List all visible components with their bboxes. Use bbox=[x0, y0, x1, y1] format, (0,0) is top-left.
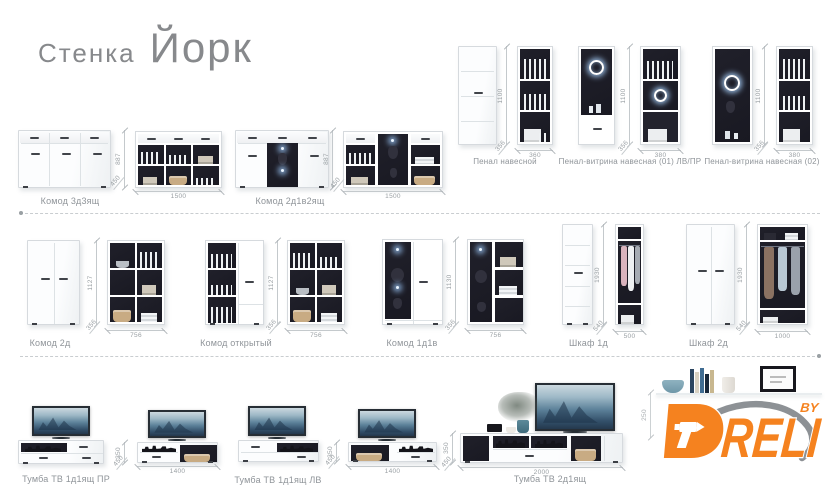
panel-seam bbox=[493, 449, 567, 450]
product-label: Шкаф 2д bbox=[661, 338, 756, 348]
title-series-name: Йорк bbox=[150, 24, 253, 72]
top-shelf bbox=[760, 227, 805, 240]
shelf-compartment bbox=[138, 166, 164, 185]
penal-vitrina-02-closed bbox=[712, 46, 753, 145]
decor-clothes bbox=[635, 246, 640, 284]
led-ring bbox=[589, 60, 604, 75]
decor-towels bbox=[321, 313, 337, 322]
dim-height-value: 1930 bbox=[736, 255, 746, 295]
drawer-strip bbox=[237, 132, 327, 143]
dim-height: 1130 bbox=[455, 239, 456, 325]
page-title: Стенка Йорк bbox=[38, 24, 253, 72]
row-divider bbox=[20, 213, 820, 214]
tv-stand-base bbox=[168, 439, 186, 441]
product-label: Шкаф 1д bbox=[541, 338, 636, 348]
handle bbox=[308, 137, 317, 139]
shkaf-2d-closed bbox=[686, 224, 735, 325]
handle bbox=[251, 446, 260, 448]
dim-height-value: 1127 bbox=[267, 263, 277, 303]
panel-seam bbox=[140, 452, 178, 453]
shelf-compartment bbox=[208, 270, 236, 295]
tv-screen bbox=[250, 408, 304, 434]
handle bbox=[474, 92, 483, 94]
komod-3d3-open bbox=[135, 131, 222, 188]
tv-stand-base bbox=[52, 437, 70, 439]
decor-silhouette bbox=[496, 438, 526, 448]
handle bbox=[79, 446, 88, 448]
tv-stand-base bbox=[378, 439, 396, 441]
handle bbox=[278, 137, 287, 139]
dim-width-value: 756 bbox=[287, 332, 345, 339]
panel-seam bbox=[239, 304, 263, 305]
vitrine-glass-door bbox=[715, 49, 750, 142]
shelf-compartment bbox=[317, 243, 342, 268]
handle bbox=[30, 137, 39, 139]
decor-basket bbox=[356, 453, 383, 461]
dim-width-value: 1400 bbox=[348, 468, 437, 475]
led-glow bbox=[391, 139, 394, 142]
penal-vitrina-01-open bbox=[640, 46, 681, 145]
product-label: Комод 1д1в bbox=[358, 338, 466, 348]
panel-seam bbox=[461, 71, 494, 72]
shkaf-2d-open bbox=[757, 224, 808, 325]
decor-books bbox=[524, 59, 546, 79]
dim-height: 1100 bbox=[629, 46, 630, 145]
dim-depth: 356 bbox=[84, 317, 100, 334]
komod-1d1v-open bbox=[467, 239, 524, 325]
decor-clothes bbox=[791, 247, 800, 295]
dim-width: 380 bbox=[640, 150, 681, 151]
shelf-compartment bbox=[779, 49, 810, 79]
tv bbox=[535, 383, 615, 431]
product-label: Тумба ТВ 1д1ящ ЛВ bbox=[217, 475, 339, 485]
row-divider bbox=[20, 356, 820, 357]
handle bbox=[201, 138, 210, 140]
komod-2d-closed bbox=[27, 240, 80, 325]
komod-1d1v-closed bbox=[382, 239, 443, 325]
led-ring bbox=[654, 89, 667, 102]
dim-width: 1500 bbox=[343, 191, 443, 192]
dim-height: 1100 bbox=[506, 46, 507, 145]
decor-bottle bbox=[596, 104, 601, 113]
decor-towels bbox=[141, 313, 157, 322]
decor-books bbox=[211, 254, 232, 268]
handle bbox=[31, 153, 40, 155]
shelf-compartment bbox=[138, 145, 164, 164]
dim-height: 887 bbox=[124, 130, 125, 188]
komod-otkrytyi-open bbox=[287, 240, 345, 325]
handle bbox=[715, 270, 724, 272]
decor-bowl bbox=[116, 261, 130, 268]
decor-vase bbox=[388, 146, 398, 159]
tv-screen-landscape bbox=[38, 415, 77, 430]
shelf-compartment bbox=[193, 166, 219, 185]
shelf-compartment bbox=[137, 297, 162, 322]
top-shelf bbox=[618, 227, 641, 239]
vitrine-glass-door bbox=[267, 143, 298, 187]
product-label: Пенал навесной bbox=[446, 157, 564, 166]
decor-bottle bbox=[734, 133, 738, 139]
decor-box bbox=[198, 156, 213, 164]
dim-height-value: 1130 bbox=[445, 262, 455, 302]
dim-width: 500 bbox=[615, 331, 644, 332]
decor-books bbox=[211, 285, 232, 295]
shelf-compartment bbox=[520, 81, 550, 111]
handle bbox=[248, 155, 257, 157]
brand-letters: RELI bbox=[719, 406, 824, 469]
dim-height: 1100 bbox=[764, 46, 765, 145]
dim-height-value: 1100 bbox=[496, 76, 506, 116]
shelf-compartment bbox=[290, 270, 315, 295]
catalog-page: Стенка Йорк 887 450 1500 Комод 3д3ящ bbox=[0, 0, 840, 504]
drawer-strip bbox=[138, 134, 219, 143]
panel-seam bbox=[565, 245, 590, 246]
decor-books bbox=[647, 61, 673, 79]
panel-seam bbox=[413, 242, 414, 324]
decor-box bbox=[143, 177, 158, 185]
panel-seam bbox=[54, 243, 55, 324]
dim-width: 1000 bbox=[757, 331, 808, 332]
dim-height: 1127 bbox=[277, 240, 278, 325]
decor-basket bbox=[169, 176, 187, 185]
penal-closed bbox=[458, 46, 497, 145]
shelf-compartment bbox=[643, 49, 678, 79]
tumba-pr-open bbox=[137, 442, 218, 463]
decor-basket bbox=[113, 310, 131, 322]
tv-screen-landscape bbox=[543, 397, 598, 423]
panel-seam bbox=[385, 320, 442, 321]
shelf-compartment bbox=[137, 270, 162, 295]
dim-width: 756 bbox=[467, 330, 524, 331]
decor-plant-foliage bbox=[498, 392, 540, 422]
panel-seam bbox=[604, 436, 605, 461]
dim-width: 1400 bbox=[137, 466, 218, 467]
decor-vase bbox=[390, 168, 397, 178]
panel-seam bbox=[49, 133, 50, 186]
shelf-compartment bbox=[166, 166, 192, 185]
tv bbox=[148, 410, 206, 438]
vitrine-compartment bbox=[470, 242, 492, 322]
komod-otkrytyi-closed bbox=[205, 240, 264, 325]
vitrine-glass-door bbox=[581, 49, 612, 115]
panel-seam bbox=[461, 121, 494, 122]
handle bbox=[593, 128, 602, 130]
product-label: Тумба ТВ 1д1ящ ПР bbox=[6, 474, 126, 484]
shelf-compartment bbox=[495, 270, 523, 295]
handle bbox=[248, 137, 257, 139]
dim-width-value: 756 bbox=[107, 332, 165, 339]
tv-screen bbox=[34, 408, 88, 434]
decor-black-box bbox=[487, 424, 502, 432]
decor-basket bbox=[414, 176, 434, 185]
tv bbox=[248, 406, 306, 436]
decor-bowl bbox=[296, 288, 310, 295]
decor-books bbox=[783, 96, 806, 111]
open-niche bbox=[21, 443, 67, 452]
product-label: Пенал-витрина навесная (02) bbox=[686, 157, 838, 166]
decor-silhouette bbox=[142, 445, 176, 452]
dim-height-value: 1127 bbox=[86, 263, 96, 303]
bottom-shelf bbox=[618, 305, 641, 324]
shelf-compartment bbox=[643, 112, 678, 142]
led-glow bbox=[281, 169, 284, 172]
vitrine-glass-door bbox=[385, 242, 411, 319]
decor-bottle bbox=[589, 106, 593, 113]
handle bbox=[152, 456, 161, 458]
handle bbox=[574, 272, 583, 274]
handle bbox=[174, 138, 183, 140]
decor-silhouette bbox=[399, 445, 433, 452]
handle bbox=[356, 138, 365, 140]
hanging-section bbox=[760, 242, 805, 308]
product-label: Тумба ТВ 2д1ящ bbox=[487, 474, 613, 484]
shelf-compartment bbox=[346, 166, 375, 185]
drawer-strip bbox=[411, 134, 440, 143]
shelf-compartment bbox=[208, 243, 236, 268]
decor-towels bbox=[499, 286, 517, 295]
tumba-lv-open bbox=[348, 442, 437, 462]
handle bbox=[411, 456, 420, 458]
decor-box bbox=[621, 315, 634, 324]
tv-stand-base bbox=[268, 437, 286, 439]
tv-screen-landscape bbox=[254, 415, 293, 430]
panel-seam bbox=[238, 243, 239, 324]
decor-box bbox=[783, 129, 800, 142]
hanging-section bbox=[618, 241, 641, 303]
decor-clothes bbox=[778, 247, 787, 291]
bottom-shelf bbox=[760, 310, 805, 323]
handle bbox=[245, 281, 254, 283]
dim-width: 1400 bbox=[348, 466, 437, 467]
product-label: Комод 2д bbox=[0, 338, 100, 348]
open-niche bbox=[463, 436, 489, 461]
panel-seam bbox=[21, 143, 108, 144]
open-niche bbox=[571, 436, 601, 461]
dim-height: 1127 bbox=[96, 240, 97, 325]
dim-height-value: 250 bbox=[640, 395, 650, 435]
penal-vitrina-01-closed bbox=[578, 46, 615, 145]
handle bbox=[41, 278, 50, 280]
dim-width-value: 1400 bbox=[137, 468, 218, 475]
handle bbox=[39, 457, 48, 459]
product-label: Комод 3д3ящ bbox=[12, 196, 128, 206]
komod-2d-open bbox=[107, 240, 165, 325]
vitrine-compartment bbox=[378, 134, 408, 185]
shelf-compartment bbox=[166, 145, 192, 164]
dim-depth: 356 bbox=[443, 317, 459, 334]
dim-width: 2000 bbox=[460, 467, 623, 468]
decor-books bbox=[539, 133, 547, 142]
decor-books bbox=[293, 253, 312, 268]
tv-screen-landscape bbox=[154, 419, 193, 433]
decor-clothes bbox=[628, 246, 634, 291]
product-label: Комод 2д1в2ящ bbox=[230, 196, 350, 206]
shelf-compartment bbox=[110, 297, 135, 322]
handle bbox=[82, 457, 91, 459]
decor-vase bbox=[393, 298, 402, 309]
decor-books bbox=[783, 59, 806, 78]
brand-by: BY bbox=[800, 400, 821, 415]
handle bbox=[59, 278, 68, 280]
shelf-compartment bbox=[346, 145, 375, 164]
decor-vase bbox=[475, 270, 487, 283]
dim-height: 1930 bbox=[603, 224, 604, 325]
shelf-compartment bbox=[520, 49, 550, 79]
shelf-compartment bbox=[208, 297, 236, 323]
dim-height-value: 887 bbox=[322, 139, 332, 179]
dim-depth: 540 bbox=[734, 318, 750, 335]
led-glow bbox=[479, 248, 482, 251]
shelf-compartment bbox=[110, 270, 135, 295]
komod-2d1v2-open bbox=[343, 131, 443, 188]
decor-basket bbox=[293, 310, 311, 322]
dim-height: 250 bbox=[650, 392, 651, 438]
tv-screen bbox=[537, 385, 613, 429]
decor-books bbox=[169, 155, 188, 164]
decor-silhouette bbox=[280, 445, 313, 452]
tv-screen bbox=[360, 411, 414, 436]
decor-box bbox=[763, 317, 779, 323]
shelf-compartment bbox=[317, 270, 342, 295]
handle bbox=[62, 153, 71, 155]
shelf-compartment bbox=[290, 243, 315, 268]
panel-seam bbox=[21, 453, 103, 454]
decor-books bbox=[320, 257, 339, 268]
vitrine-compartment bbox=[643, 81, 678, 111]
tv-screen-landscape bbox=[364, 418, 403, 433]
decor-vase bbox=[278, 153, 287, 165]
dim-depth: 356 bbox=[616, 138, 632, 155]
tv bbox=[358, 409, 416, 438]
dim-height: 1930 bbox=[746, 224, 747, 325]
shelf-compartment bbox=[110, 243, 135, 268]
handle bbox=[525, 455, 534, 457]
led-glow bbox=[281, 147, 284, 150]
poster-text-line bbox=[770, 376, 786, 378]
decor-books bbox=[349, 153, 370, 164]
decor-books bbox=[196, 178, 215, 185]
decor-vase bbox=[477, 302, 486, 312]
decor-vase bbox=[726, 101, 735, 113]
dim-width: 756 bbox=[107, 330, 165, 331]
drawer-strip bbox=[20, 132, 109, 143]
decor-towels bbox=[785, 233, 799, 240]
shkaf-1d-closed bbox=[562, 224, 593, 325]
open-niche bbox=[277, 443, 318, 452]
panel-seam bbox=[565, 306, 590, 307]
tv bbox=[32, 406, 90, 436]
dim-width-value: 1000 bbox=[757, 333, 808, 340]
panel-seam bbox=[565, 286, 590, 287]
panel-seam bbox=[241, 452, 318, 453]
decor-clothes bbox=[621, 246, 627, 286]
shelf-compartment bbox=[495, 242, 523, 267]
open-niche bbox=[493, 436, 529, 448]
dim-width: 756 bbox=[287, 330, 345, 331]
shelf-compartment bbox=[411, 145, 440, 164]
dim-height-value: 1100 bbox=[619, 76, 629, 116]
panel-seam bbox=[711, 227, 712, 324]
decor-towels bbox=[415, 157, 434, 164]
komod-3d3-closed bbox=[18, 130, 111, 188]
decor-clothes bbox=[764, 247, 774, 299]
handle bbox=[147, 138, 156, 140]
dim-height-value: 1100 bbox=[754, 76, 764, 116]
shelf-compartment bbox=[520, 112, 550, 142]
decor-basket bbox=[184, 454, 210, 462]
tumba-lv-closed bbox=[238, 440, 319, 462]
handle bbox=[297, 456, 306, 458]
drawer-strip bbox=[346, 134, 375, 143]
panel-seam bbox=[397, 452, 435, 453]
led-glow bbox=[396, 286, 399, 289]
led-glow bbox=[396, 248, 399, 251]
komod-2d1v2-closed bbox=[235, 130, 329, 188]
shelf-compartment bbox=[290, 297, 315, 322]
open-niche bbox=[180, 445, 217, 462]
dreli-logo: RELI BY bbox=[656, 388, 832, 472]
handle bbox=[698, 270, 707, 272]
decor-basket bbox=[575, 449, 596, 461]
open-niche bbox=[351, 445, 389, 461]
decor-silhouette bbox=[25, 445, 62, 452]
decor-books bbox=[524, 94, 546, 110]
dim-height-value: 1930 bbox=[593, 255, 603, 295]
dim-width: 1500 bbox=[135, 191, 222, 192]
panel-seam bbox=[80, 133, 81, 186]
shelf-compartment bbox=[495, 298, 523, 322]
product-label: Комод открытый bbox=[180, 338, 292, 348]
panel-seam bbox=[565, 265, 590, 266]
dim-width-value: 756 bbox=[467, 332, 524, 339]
tumba-pr-closed bbox=[18, 440, 104, 464]
decor-box bbox=[351, 177, 368, 185]
shelf-compartment bbox=[779, 112, 810, 142]
tumba-2d-open bbox=[460, 433, 623, 463]
handle bbox=[419, 281, 428, 283]
panel-seam bbox=[461, 96, 494, 97]
handle bbox=[421, 138, 430, 140]
dim-width: 360 bbox=[517, 150, 553, 151]
decor-silhouette bbox=[535, 439, 564, 448]
led-ring bbox=[724, 75, 740, 91]
dim-width-value: 1500 bbox=[135, 193, 222, 200]
title-prefix: Стенка bbox=[38, 38, 136, 69]
shelf-compartment bbox=[193, 145, 219, 164]
shelf-compartment bbox=[317, 297, 342, 322]
penal-vitrina-02-open bbox=[776, 46, 813, 145]
handle bbox=[90, 137, 99, 139]
open-niche bbox=[531, 436, 567, 448]
decor-box bbox=[142, 285, 157, 296]
decor-box bbox=[764, 233, 776, 240]
decor-bottle bbox=[725, 131, 730, 139]
shelf-compartment bbox=[779, 81, 810, 111]
shkaf-1d-open bbox=[615, 224, 644, 325]
decor-books bbox=[140, 252, 159, 268]
decor-books bbox=[211, 307, 232, 323]
shelf-compartment bbox=[137, 243, 162, 268]
decor-vase bbox=[391, 268, 404, 282]
penal-open bbox=[517, 46, 553, 145]
dim-depth: 540 bbox=[591, 318, 607, 335]
decor-books bbox=[141, 152, 160, 164]
handle bbox=[93, 153, 102, 155]
shelf-compartment bbox=[411, 166, 440, 185]
dim-width: 380 bbox=[776, 150, 813, 151]
decor-box bbox=[322, 285, 337, 296]
poster-text-line bbox=[770, 381, 782, 383]
